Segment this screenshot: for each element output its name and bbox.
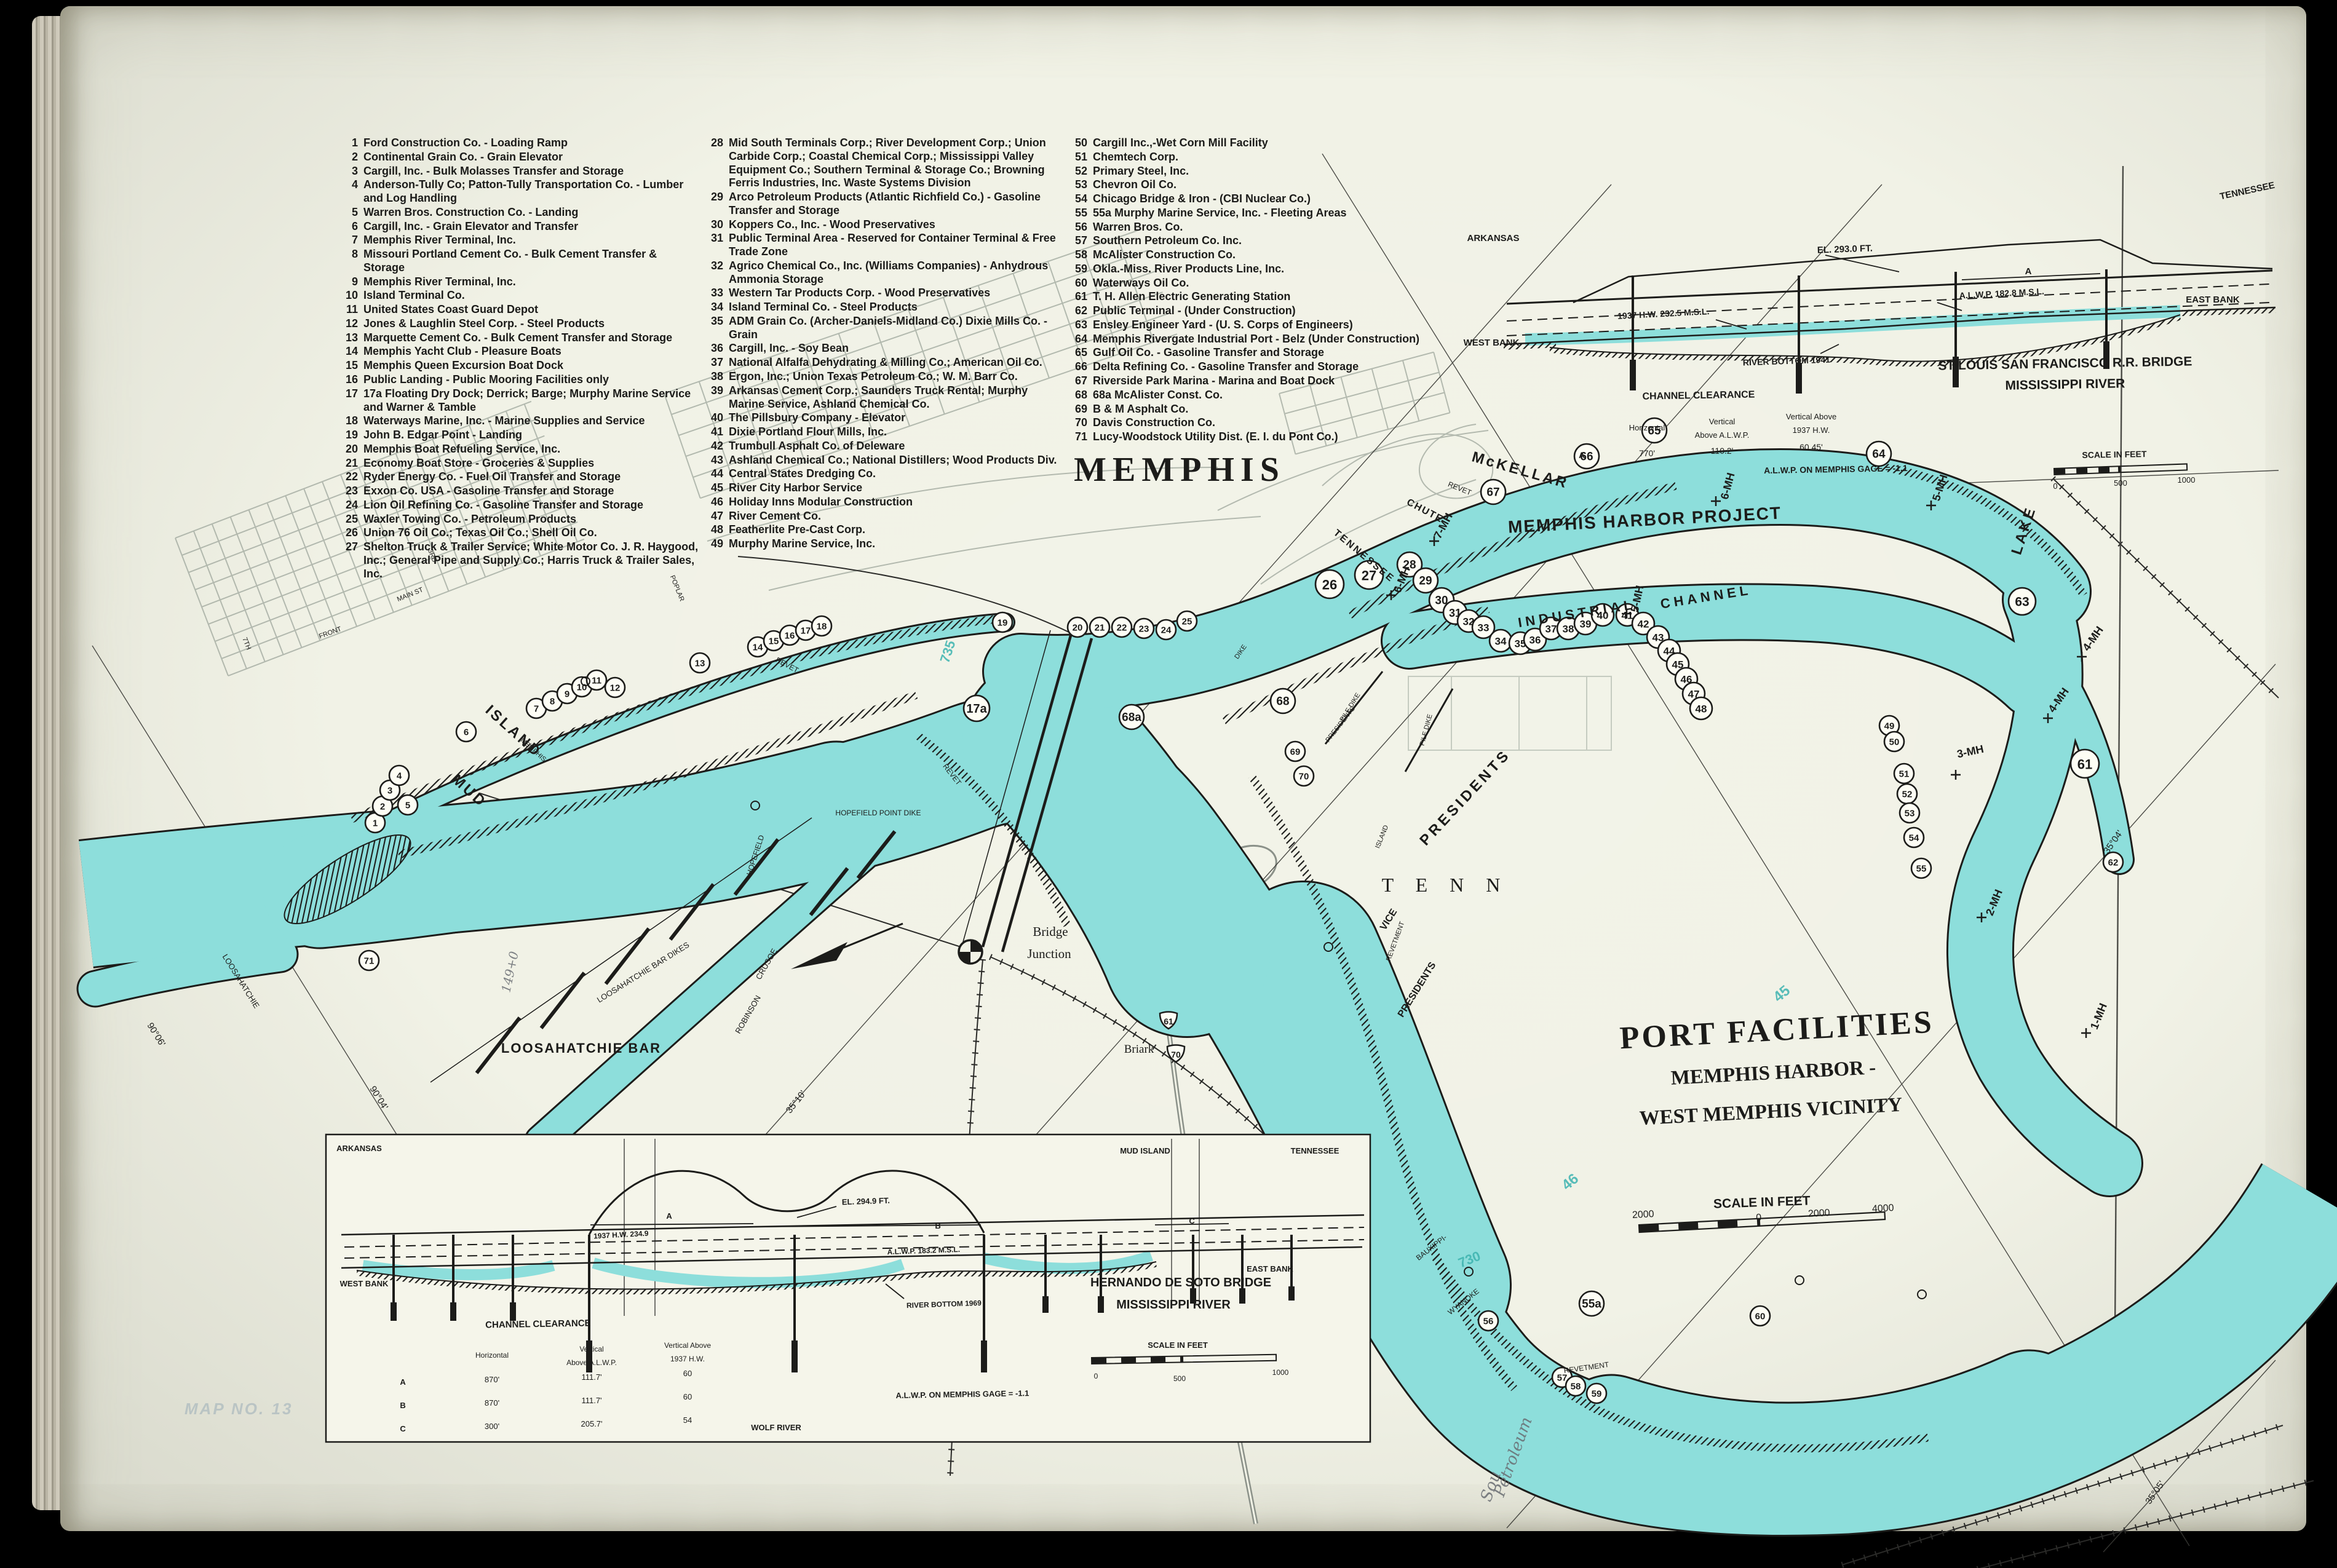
map-label: Above A.L.W.P.	[566, 1358, 617, 1367]
legend-item: 37National Alfalfa Dehydrating & Milling…	[705, 356, 1061, 370]
map-label: 205.7'	[581, 1419, 602, 1428]
map-dot	[1918, 1290, 1926, 1299]
map-label: A	[1579, 450, 1585, 460]
map-label: LOOSAHATCHIE BAR DIKES	[595, 940, 691, 1005]
map-label: 46	[1558, 1170, 1582, 1194]
map-label: ST LOUIS SAN FRANCISCO R.R. BRIDGE	[1938, 354, 2192, 373]
legend-item: 54Chicago Bridge & Iron - (CBI Nuclear C…	[1069, 192, 1453, 206]
map-label: 770'	[1639, 448, 1655, 458]
map-label: ISLAND	[1374, 824, 1390, 849]
legend-item: 70Davis Construction Co.	[1069, 416, 1453, 430]
mile-cross	[2081, 1028, 2091, 1038]
facility-marker-number: 17a	[966, 702, 987, 716]
facility-marker-number: 60	[1755, 1312, 1766, 1322]
legend-item: 66Delta Refining Co. - Gasoline Transfer…	[1069, 360, 1453, 374]
map-label: Above A.L.W.P.	[1695, 430, 1750, 440]
legend-item: 43Ashland Chemical Co.; National Distill…	[705, 454, 1061, 467]
map-label: C	[1189, 1216, 1195, 1225]
facility-marker-number: 68	[1276, 695, 1289, 708]
legend-item: 30Koppers Co., Inc. - Wood Preservatives	[705, 218, 1061, 232]
legend-item: 61T. H. Allen Electric Generating Statio…	[1069, 290, 1453, 304]
legend-item: 69B & M Asphalt Co.	[1069, 403, 1453, 416]
legend-item: 56Warren Bros. Co.	[1069, 221, 1453, 234]
map-label: EAST BANK	[2186, 295, 2240, 305]
facility-marker-number: 16	[785, 631, 795, 641]
facility-marker-number: 1	[373, 818, 378, 829]
facility-marker-number: 22	[1117, 623, 1127, 633]
map-label: 1937 H.W. 232.5 M.S.L.	[1617, 306, 1710, 321]
facility-marker-number: 61	[2077, 757, 2092, 772]
legend-item: 32Agrico Chemical Co., Inc. (Williams Co…	[705, 259, 1061, 287]
map-label: Horizontal	[1629, 423, 1665, 432]
legend-item: 5555a Murphy Marine Service, Inc. - Flee…	[1069, 207, 1453, 220]
legend-item: 25Waxler Towing Co. - Petroleum Products	[339, 513, 699, 526]
legend-item: 64Memphis Rivergate Industrial Port - Be…	[1069, 333, 1453, 346]
map-label: MISSISSIPPI RIVER	[2005, 376, 2125, 392]
facility-marker-number: 12	[610, 683, 621, 694]
main-scale-bar	[1639, 1212, 1885, 1232]
facility-marker-number: 51	[1899, 769, 1910, 780]
map-label: 0	[1756, 1213, 1762, 1223]
legend-item: 6Cargill, Inc. - Grain Elevator and Tran…	[339, 220, 699, 234]
map-label: B	[400, 1401, 405, 1410]
facility-marker-number: 54	[1909, 833, 1919, 844]
legend-col-1: 28Mid South Terminals Corp.; River Devel…	[705, 137, 1061, 552]
facility-marker-number: 53	[1905, 809, 1915, 819]
map-label: 4-MH	[2080, 624, 2106, 654]
map-label: SCALE IN FEET	[1148, 1340, 1208, 1350]
map-label: A	[2025, 266, 2032, 277]
map-label: FRONT	[318, 625, 343, 640]
map-label: 54	[683, 1416, 692, 1425]
legend-item: 58McAlister Construction Co.	[1069, 248, 1453, 262]
map-label: CHANNEL CLEARANCE	[485, 1318, 591, 1331]
facility-marker-number: 49	[1884, 721, 1895, 732]
map-label: 870'	[485, 1398, 499, 1408]
map-label: 1937 H.W.	[670, 1355, 705, 1363]
facility-marker-number: 19	[998, 618, 1008, 628]
map-label: 735	[937, 638, 958, 665]
map-label: 1000	[2178, 475, 2196, 485]
map-label: 1-MH	[2088, 1002, 2109, 1031]
map-label: Briark	[1124, 1043, 1154, 1056]
facility-marker-number: 70	[1299, 772, 1309, 782]
map-label: HOPEFIELD POINT DIKE	[835, 809, 921, 817]
facility-marker-number: 55	[1916, 864, 1927, 874]
map-label: 0	[1094, 1372, 1098, 1380]
map-label: LOOSAHATCHIE BAR	[501, 1040, 661, 1056]
map-label: 60	[683, 1392, 692, 1401]
map-label: Horizontal	[475, 1351, 509, 1360]
map-label: 1000	[1272, 1368, 1289, 1377]
legend-item: 12Jones & Laughlin Steel Corp. - Steel P…	[339, 317, 699, 331]
map-label: WEST BANK	[1464, 338, 1520, 348]
facility-marker-number: 71	[364, 956, 375, 967]
map-label: 500	[1173, 1374, 1186, 1383]
facility-marker-number: 29	[1419, 575, 1432, 588]
legend-item: 39Arkansas Cement Corp.; Saunders Truck …	[705, 384, 1061, 411]
legend-item: 71Lucy-Woodstock Utility Dist. (E. I. du…	[1069, 430, 1453, 444]
map-label: TENNESSEE	[2219, 180, 2275, 202]
facility-marker-number: 55a	[1582, 1298, 1601, 1311]
legend-item: 9Memphis River Terminal, Inc.	[339, 275, 699, 289]
map-label: WEST BANK	[340, 1279, 389, 1288]
legend-item: 51Chemtech Corp.	[1069, 151, 1453, 164]
map-label: 0	[2053, 481, 2057, 491]
map-label: 60	[683, 1369, 692, 1378]
legend-item: 35ADM Grain Co. (Archer-Daniels-Midland …	[705, 315, 1061, 342]
legend-item: 45River City Harbor Service	[705, 481, 1061, 495]
facility-marker-number: 50	[1889, 737, 1900, 748]
facility-marker-number: 6	[464, 727, 469, 738]
map-label: Vertical	[1709, 417, 1736, 426]
map-label: EL. 294.9 FT.	[842, 1196, 891, 1207]
map-label: PILE DIKE	[1338, 692, 1362, 723]
legend-item: 47River Cement Co.	[705, 510, 1061, 523]
legend-item: 65Gulf Oil Co. - Gasoline Transfer and S…	[1069, 346, 1453, 360]
map-label: 110.2'	[1711, 446, 1734, 456]
legend-item: 31Public Terminal Area - Reserved for Co…	[705, 232, 1061, 259]
map-label: PRESIDENTS	[1416, 746, 1514, 849]
map-label: Vertical Above	[664, 1341, 711, 1350]
facility-marker-number: 5	[405, 801, 410, 811]
facility-marker-number: 24	[1161, 625, 1172, 636]
map-label: A	[666, 1211, 672, 1221]
legend-item: 21Economy Boat Store - Groceries & Suppl…	[339, 457, 699, 470]
map-label: EL. 293.0 FT.	[1817, 243, 1873, 255]
legend-item: 2Continental Grain Co. - Grain Elevator	[339, 151, 699, 164]
map-label: Vertical Above	[1786, 412, 1836, 421]
facility-marker-number: 58	[1571, 1382, 1581, 1392]
facility-marker-number: 13	[695, 659, 705, 669]
legend-item: 60Waterways Oil Co.	[1069, 277, 1453, 290]
mile-cross	[1951, 770, 1961, 780]
legend-item: 14Memphis Yacht Club - Pleasure Boats	[339, 345, 699, 358]
facility-marker-number: 4	[397, 771, 402, 782]
legend-item: 52Primary Steel, Inc.	[1069, 165, 1453, 178]
legend-item: 33Western Tar Products Corp. - Wood Pres…	[705, 287, 1061, 300]
map-label: CHANNEL CLEARANCE	[1642, 389, 1755, 402]
map-label: ROBINSON	[733, 994, 763, 1035]
legend-item: 28Mid South Terminals Corp.; River Devel…	[705, 137, 1061, 190]
map-label: Vertical	[579, 1345, 603, 1353]
map-label: MEMPHIS	[1074, 451, 1285, 489]
map-label: REVETMENT	[1563, 1360, 1610, 1375]
map-label: Junction	[1027, 946, 1071, 961]
legend-item: 63Ensley Engineer Yard - (U. S. Corps of…	[1069, 319, 1453, 332]
facility-marker-number: 25	[1182, 617, 1192, 627]
facility-marker-number: 69	[1290, 747, 1301, 758]
legend-item: 49Murphy Marine Service, Inc.	[705, 537, 1061, 551]
map-label: T E N N	[1382, 874, 1509, 896]
legend-item: 50Cargill Inc.,-Wet Corn Mill Facility	[1069, 137, 1453, 150]
map-label: HERNANDO DE SOTO BRIDGE	[1090, 1276, 1271, 1289]
facility-marker-number: 56	[1483, 1317, 1494, 1327]
legend-item: 3Cargill, Inc. - Bulk Molasses Transfer …	[339, 165, 699, 178]
facility-marker-number: 42	[1638, 619, 1649, 630]
map-label: PORT FACILITIES	[1619, 1005, 1935, 1056]
legend-item: 23Exxon Co. USA - Gasoline Transfer and …	[339, 485, 699, 498]
legend-item: 18Waterways Marine, Inc. - Marine Suppli…	[339, 414, 699, 428]
map-label: 60.45'	[1799, 442, 1823, 452]
map-label: EAST BANK	[1247, 1264, 1293, 1273]
map-label: B	[935, 1221, 940, 1230]
map-label: 149+0	[498, 950, 522, 994]
legend-item: 57Southern Petroleum Co. Inc.	[1069, 234, 1453, 248]
map-label: 1937 H.W.	[1793, 426, 1830, 435]
map-label: 4000	[1872, 1203, 1895, 1214]
map-label: 7TH	[240, 636, 252, 651]
legend-item: 67Riverside Park Marina - Marina and Boa…	[1069, 374, 1453, 388]
facility-marker-number: 23	[1139, 624, 1149, 635]
legend-item: 7Memphis River Terminal, Inc.	[339, 234, 699, 247]
legend-item: 20Memphis Boat Refueling Service, Inc.	[339, 443, 699, 456]
facility-marker-number: 67	[1486, 486, 1499, 499]
railroad-junction-symbol	[959, 940, 982, 964]
facility-marker-number: 64	[1872, 448, 1886, 461]
facility-marker-number: 59	[1592, 1389, 1602, 1400]
legend-item: 19John B. Edgar Point - Landing	[339, 429, 699, 442]
map-label: MEMPHIS HARBOR -	[1670, 1056, 1876, 1089]
facility-marker-number: 2	[380, 802, 385, 812]
facility-marker-number: 8	[550, 697, 555, 707]
legend-item: 16Public Landing - Public Mooring Facili…	[339, 373, 699, 387]
facility-marker-number: 9	[565, 689, 569, 700]
map-label: ARKANSAS	[336, 1144, 382, 1153]
legend-col-2: 50Cargill Inc.,-Wet Corn Mill Facility51…	[1069, 137, 1453, 445]
map-number-stamp: MAP NO. 13	[184, 1400, 293, 1419]
legend-item: 6868a McAlister Const. Co.	[1069, 389, 1453, 402]
facility-marker-number: 38	[1563, 624, 1574, 635]
map-dot	[1795, 1276, 1804, 1285]
map-label: MISSISSIPPI RIVER	[1116, 1298, 1231, 1312]
map-label: 45	[1770, 982, 1793, 1005]
legend-item: 11United States Coast Guard Depot	[339, 303, 699, 317]
map-label: 111.7'	[581, 1396, 601, 1405]
facility-marker-number: 18	[817, 622, 827, 632]
facility-marker-number: 3	[387, 786, 392, 796]
legend-item: 24Lion Oil Refining Co. - Gasoline Trans…	[339, 499, 699, 512]
facility-marker-number: 33	[1478, 622, 1490, 634]
facility-marker-number: 15	[769, 636, 779, 647]
map-label: WEST MEMPHIS VICINITY	[1639, 1094, 1903, 1130]
map-label: A	[400, 1377, 406, 1387]
map-label: PILE DIKE	[1419, 713, 1434, 746]
legend-item: 15Memphis Queen Excursion Boat Dock	[339, 359, 699, 373]
facility-marker-number: 63	[2015, 595, 2029, 609]
route-shield-number: 70	[1171, 1050, 1181, 1059]
north-arrow	[791, 924, 903, 969]
legend-item: 5Warren Bros. Construction Co. - Landing	[339, 206, 699, 220]
legend-item: 44Central States Dredging Co.	[705, 467, 1061, 481]
map-label: 300'	[485, 1422, 499, 1431]
map-label: WOLF RIVER	[751, 1423, 801, 1432]
legend-item: 1717a Floating Dry Dock; Derrick; Barge;…	[339, 387, 699, 414]
legend-item: 1Ford Construction Co. - Loading Ramp	[339, 137, 699, 150]
map-label: 35°05'	[2143, 1479, 2167, 1506]
map-label: Bridge	[1033, 924, 1068, 939]
legend-item: 41Dixie Portland Flour Mills, Inc.	[705, 426, 1061, 439]
legend-item: 53Chevron Oil Co.	[1069, 178, 1453, 192]
legend-item: 42Trumbull Asphalt Co. of Deleware	[705, 440, 1061, 453]
facility-marker-number: 36	[1530, 635, 1541, 646]
legend-item: 22Ryder Energy Co. - Fuel Oil Transfer a…	[339, 470, 699, 484]
legend-item: 46Holiday Inns Modular Construction	[705, 496, 1061, 509]
facility-marker-number: 20	[1073, 623, 1083, 633]
facility-marker-number: 48	[1696, 703, 1707, 715]
legend-item: 10Island Terminal Co.	[339, 289, 699, 303]
map-label: PRESIDENTS	[1396, 960, 1438, 1019]
facility-marker-number: 7	[534, 704, 539, 715]
legend-item: 26Union 76 Oil Co.; Texas Oil Co.; Shell…	[339, 526, 699, 540]
legend-item: 38Ergon, Inc.; Union Texas Petroleum Co.…	[705, 370, 1061, 384]
legend-item: 27Shelton Truck & Trailer Service; White…	[339, 540, 699, 580]
map-label: 3-MH	[1956, 743, 1985, 761]
legend-col-0: 1Ford Construction Co. - Loading Ramp2Co…	[339, 137, 699, 582]
legend-item: 29Arco Petroleum Products (Atlantic Rich…	[705, 191, 1061, 218]
legend-item: 48Featherlite Pre-Cast Corp.	[705, 523, 1061, 537]
map-label: 2000	[1808, 1208, 1831, 1219]
map-label: ARKANSAS	[1467, 233, 1519, 244]
map-label: 35°10'	[784, 1088, 808, 1115]
legend-item: 36Cargill, Inc. - Soy Bean	[705, 342, 1061, 355]
map-label: SCALE IN FEET	[1713, 1194, 1811, 1211]
route-shield-number: 61	[1164, 1016, 1173, 1026]
legend-item: 62Public Terminal - (Under Construction)	[1069, 304, 1453, 318]
map-label: MUD ISLAND	[1120, 1146, 1170, 1155]
facility-marker-number: 14	[753, 643, 763, 653]
map-label: TENNESSEE	[1291, 1146, 1339, 1155]
map-label: SCALE IN FEET	[2082, 449, 2147, 460]
photo-of-book-page: 1234567891011121314151617181917a20212223…	[0, 0, 2337, 1568]
legend-item: 13Marquette Cement Co. - Bulk Cement Tra…	[339, 331, 699, 345]
map-label: C	[400, 1424, 406, 1433]
facility-marker-number: 68a	[1122, 711, 1141, 724]
facility-marker-number: 11	[592, 676, 601, 686]
map-label: 111.7'	[581, 1372, 601, 1382]
map-label: 870'	[485, 1375, 499, 1384]
map-label: 90°06'	[145, 1021, 167, 1048]
legend-item: 34Island Terminal Co. - Steel Products	[705, 301, 1061, 314]
facility-marker-number: 17	[801, 626, 811, 636]
legend-item: 59Okla.-Miss. River Products Line, Inc.	[1069, 263, 1453, 276]
facility-marker-number: 26	[1322, 577, 1337, 593]
map-label: 500	[2114, 478, 2127, 488]
legend-item: 40The Pillsbury Company - Elevator	[705, 411, 1061, 425]
facility-marker-number: 21	[1095, 623, 1105, 633]
facility-marker-number: 52	[1902, 790, 1913, 800]
map-label: A.L.W.P. 182.8 M.S.L.	[1959, 286, 2044, 300]
legend-item: 8Missouri Portland Cement Co. - Bulk Cem…	[339, 248, 699, 275]
facility-marker-number: 34	[1495, 636, 1507, 647]
map-label: 2000	[1632, 1209, 1655, 1221]
facility-marker-number: 62	[2108, 858, 2119, 868]
legend-item: 4Anderson-Tully Co; Patton-Tully Transpo…	[339, 178, 699, 205]
map-label: 90°04'	[367, 1084, 390, 1112]
